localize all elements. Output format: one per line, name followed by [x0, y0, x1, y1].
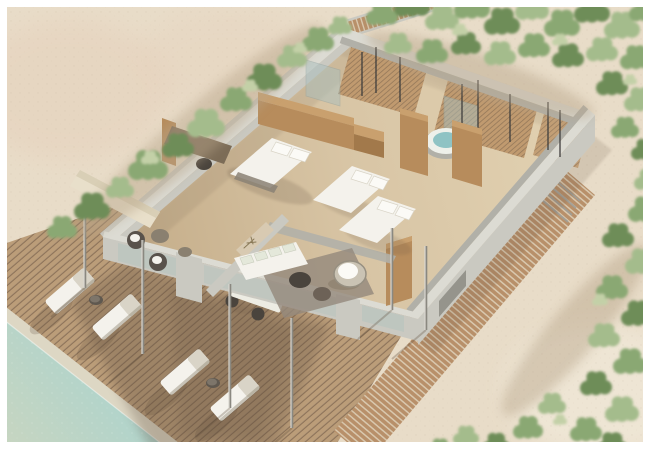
- round-table: [151, 229, 169, 243]
- dining-chair: [252, 308, 265, 321]
- round-table: [178, 247, 192, 257]
- side-table: [206, 378, 220, 388]
- facade-pier: [176, 252, 202, 303]
- render-frame: [0, 0, 650, 449]
- pouf: [313, 287, 331, 301]
- side-table: [89, 295, 103, 305]
- villa-floorplan-render: [0, 0, 650, 449]
- pouf: [289, 272, 311, 288]
